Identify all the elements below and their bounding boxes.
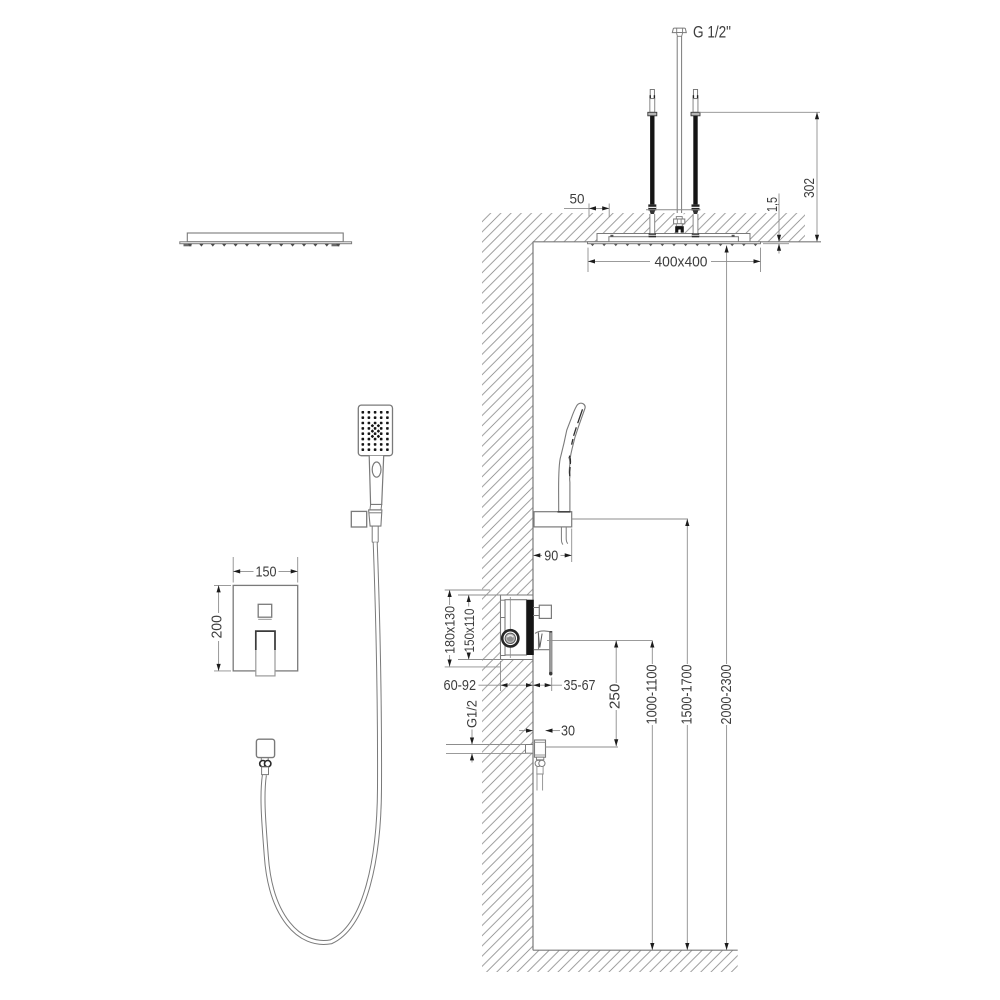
svg-text:250: 250 [606, 684, 623, 710]
svg-text:50: 50 [570, 191, 585, 206]
svg-text:180x130: 180x130 [441, 606, 457, 654]
svg-text:1500-1700: 1500-1700 [679, 665, 696, 725]
svg-text:150: 150 [256, 564, 277, 581]
svg-text:1000-1100: 1000-1100 [643, 665, 660, 725]
svg-text:200: 200 [209, 615, 226, 639]
svg-text:302: 302 [801, 178, 818, 198]
svg-text:35-67: 35-67 [564, 677, 596, 694]
svg-text:150x110: 150x110 [461, 608, 477, 652]
svg-text:G 1/2": G 1/2" [693, 23, 731, 42]
svg-text:30: 30 [561, 722, 575, 739]
svg-text:2000-2300: 2000-2300 [718, 665, 735, 725]
svg-text:90: 90 [544, 547, 558, 564]
svg-text:G1/2: G1/2 [464, 700, 480, 728]
svg-text:60-92: 60-92 [444, 677, 477, 694]
svg-text:1,5: 1,5 [764, 197, 781, 212]
svg-text:400x400: 400x400 [655, 253, 708, 270]
